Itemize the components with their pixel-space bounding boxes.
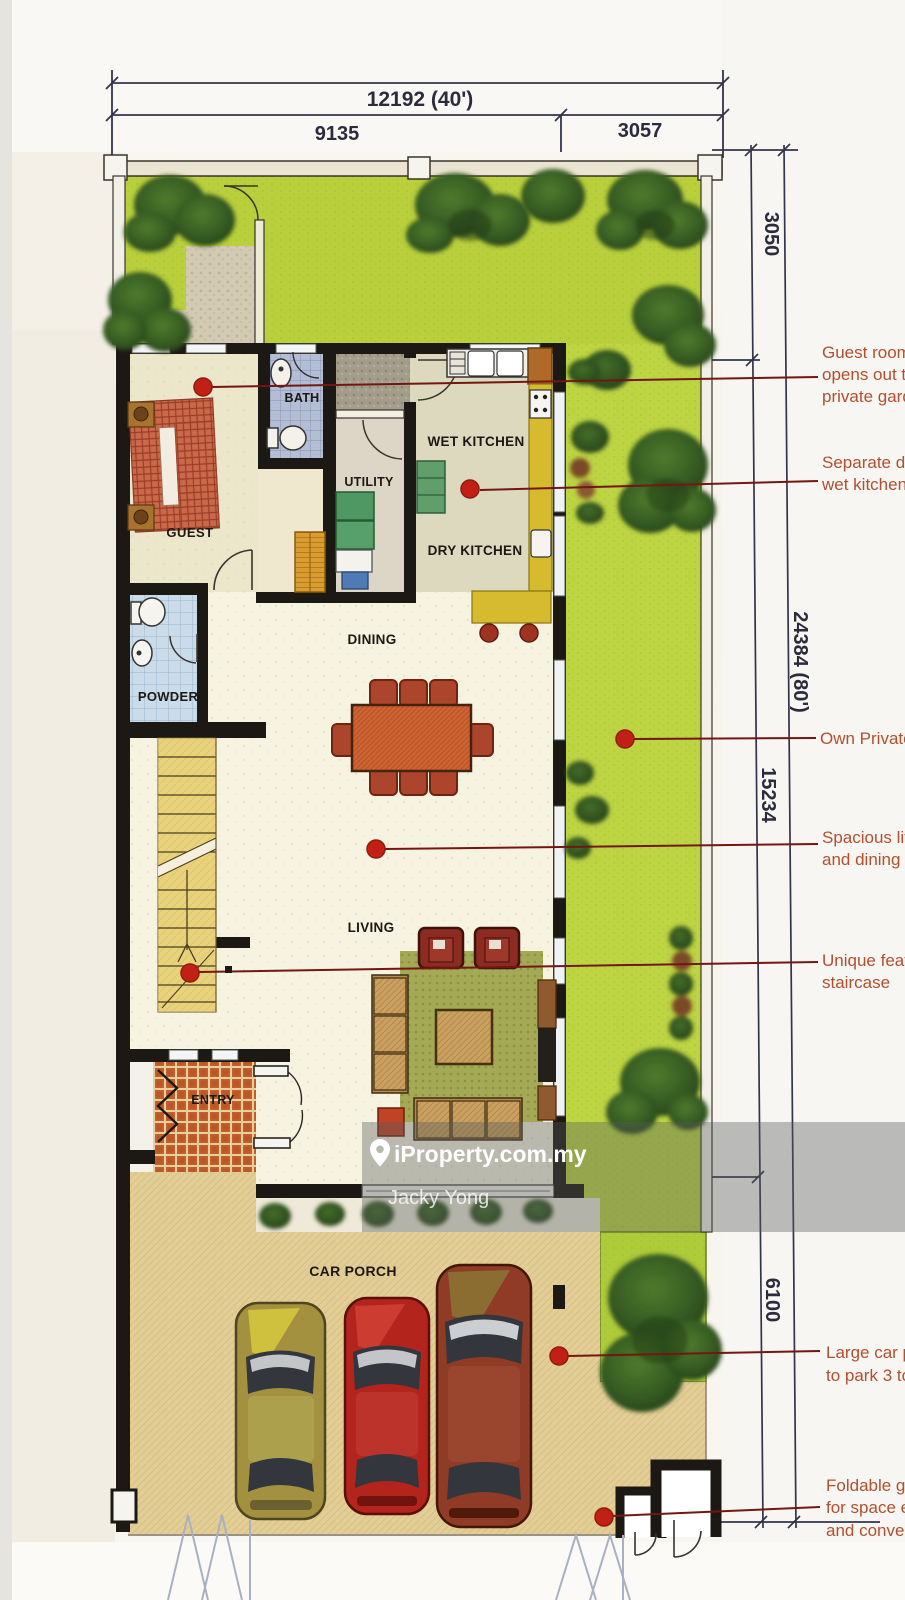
svg-text:Foldable gate: Foldable gate: [826, 1476, 905, 1495]
svg-text:Unique featur: Unique featur: [822, 951, 905, 970]
svg-text:for space effic: for space effic: [826, 1498, 905, 1517]
svg-text:opens out to: opens out to: [822, 365, 905, 384]
svg-text:3050: 3050: [760, 212, 782, 257]
svg-text:WET KITCHEN: WET KITCHEN: [427, 434, 524, 449]
svg-text:3057: 3057: [618, 120, 663, 142]
svg-text:CAR PORCH: CAR PORCH: [309, 1263, 396, 1279]
svg-text:POWDER: POWDER: [138, 689, 199, 704]
svg-text:GUEST: GUEST: [166, 525, 213, 540]
svg-text:DINING: DINING: [347, 632, 396, 647]
svg-text:Large car por: Large car por: [826, 1343, 905, 1362]
svg-text:Own Private G: Own Private G: [820, 729, 905, 748]
svg-text:Guest room w: Guest room w: [822, 343, 905, 362]
svg-text:UTILITY: UTILITY: [344, 475, 394, 489]
svg-text:BATH: BATH: [285, 391, 320, 405]
svg-text:wet kitchens: wet kitchens: [821, 475, 905, 494]
svg-text:9135: 9135: [315, 123, 360, 145]
svg-text:12192 (40'): 12192 (40'): [367, 88, 474, 111]
svg-text:Separate dry: Separate dry: [822, 453, 905, 472]
svg-text:ENTRY: ENTRY: [191, 1093, 235, 1107]
svg-text:iProperty.com.my: iProperty.com.my: [394, 1141, 587, 1167]
svg-text:to park 3 to 4: to park 3 to 4: [826, 1366, 905, 1385]
svg-text:and convenie: and convenie: [826, 1521, 905, 1540]
svg-text:and dining are: and dining are: [822, 850, 905, 869]
svg-text:6100: 6100: [761, 1278, 783, 1323]
svg-text:Jacky Yong: Jacky Yong: [388, 1187, 489, 1209]
svg-text:LIVING: LIVING: [348, 920, 395, 935]
svg-text:15234: 15234: [757, 767, 779, 823]
svg-text:staircase: staircase: [822, 973, 890, 992]
svg-text:DRY KITCHEN: DRY KITCHEN: [428, 543, 523, 558]
svg-text:Spacious livin: Spacious livin: [822, 828, 905, 847]
svg-text:24384 (80'): 24384 (80'): [789, 611, 811, 713]
svg-text:private garden: private garden: [822, 387, 905, 406]
